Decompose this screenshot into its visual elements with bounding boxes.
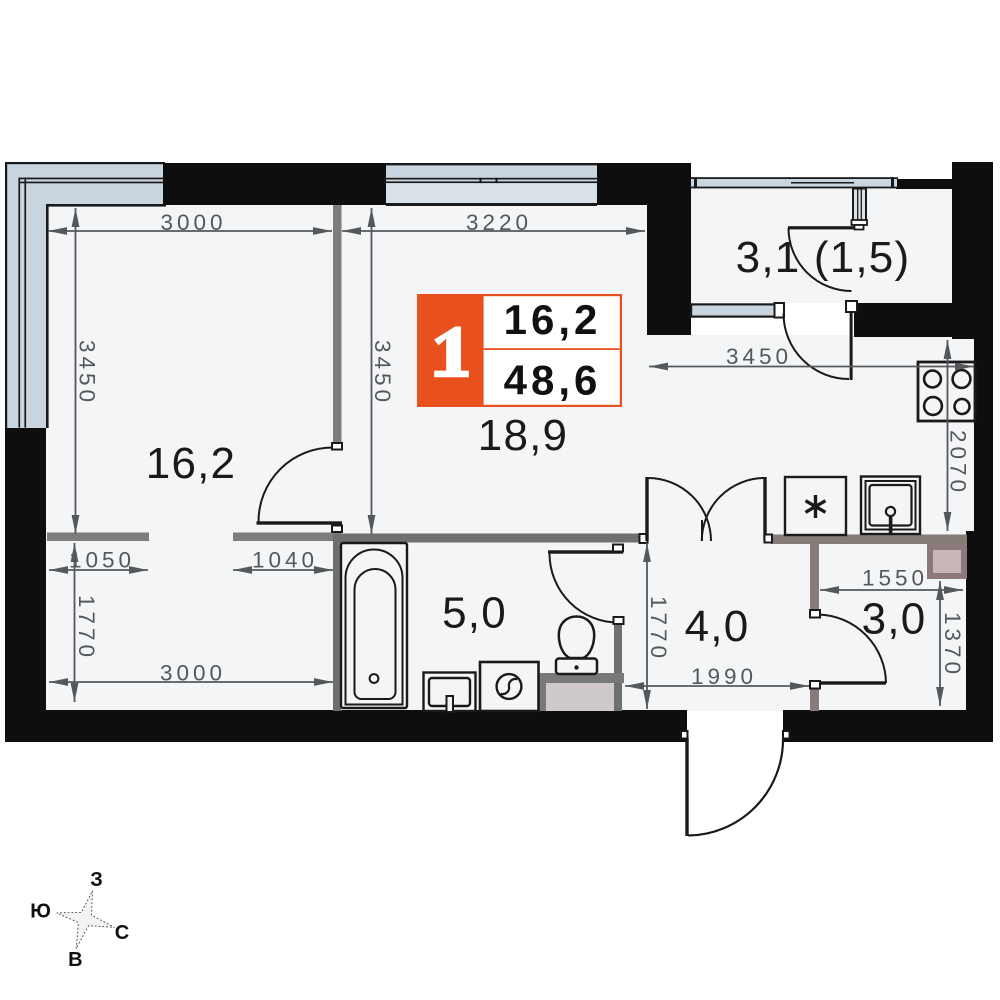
svg-text:С: С [115, 922, 129, 944]
svg-text:В: В [68, 949, 82, 971]
svg-text:2070: 2070 [946, 430, 971, 496]
svg-text:3220: 3220 [466, 210, 532, 235]
svg-text:3450: 3450 [726, 344, 792, 369]
svg-text:1550: 1550 [862, 566, 928, 591]
svg-text:Ю: Ю [30, 901, 51, 923]
svg-text:4,0: 4,0 [685, 602, 750, 651]
svg-text:18,9: 18,9 [478, 411, 568, 460]
svg-text:16,2: 16,2 [146, 439, 236, 488]
svg-text:16,2: 16,2 [504, 296, 602, 343]
svg-text:48,6: 48,6 [504, 357, 602, 404]
svg-text:1770: 1770 [646, 596, 671, 662]
svg-text:1050: 1050 [69, 548, 135, 573]
svg-text:3,1 (1,5): 3,1 (1,5) [736, 233, 911, 282]
svg-text:3450: 3450 [75, 340, 100, 406]
svg-text:1040: 1040 [252, 548, 318, 573]
svg-text:3000: 3000 [160, 661, 226, 686]
svg-text:1990: 1990 [691, 664, 757, 689]
svg-text:3450: 3450 [370, 340, 395, 406]
svg-text:3000: 3000 [160, 210, 226, 235]
svg-text:5,0: 5,0 [442, 589, 507, 638]
svg-text:1770: 1770 [74, 595, 99, 661]
svg-text:1370: 1370 [940, 612, 965, 678]
svg-text:3,0: 3,0 [862, 595, 927, 644]
svg-text:З: З [90, 869, 103, 891]
